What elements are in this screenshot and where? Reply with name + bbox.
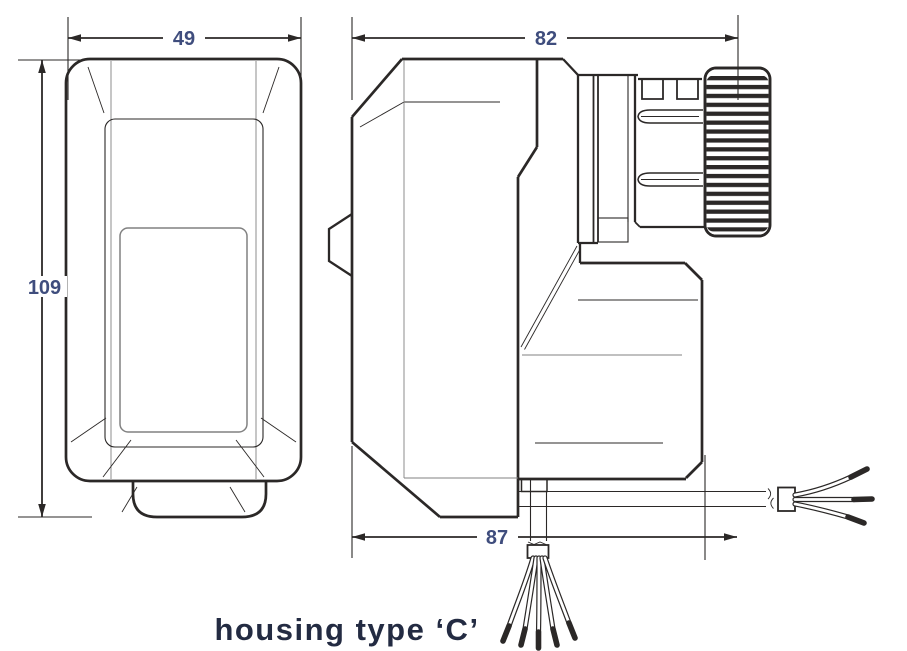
cable-vertical xyxy=(522,479,549,558)
dim-side-depth-lower-label: 87 xyxy=(486,527,508,549)
side-body-outline xyxy=(352,59,578,517)
dim-side-depth-upper-label: 82 xyxy=(535,28,557,50)
caption: housing type ‘C’ xyxy=(214,612,479,647)
front-view xyxy=(66,59,301,517)
side-view xyxy=(329,59,872,648)
side-mounting-tab xyxy=(329,214,352,276)
dim-side-depth-upper: 82 xyxy=(352,15,738,100)
side-stem xyxy=(638,79,703,186)
dim-front-width-label: 49 xyxy=(173,28,195,50)
wire-fan-right xyxy=(795,469,872,523)
stem-tab-right xyxy=(677,79,698,99)
front-body-outline xyxy=(66,59,301,481)
side-body-inner-lines xyxy=(360,60,518,478)
wire-fan-bottom xyxy=(503,558,575,648)
cable-horizontal xyxy=(519,488,795,512)
stem-tab-left xyxy=(642,79,663,99)
side-collar xyxy=(578,75,706,263)
front-foot xyxy=(133,481,266,517)
housing-dimension-drawing: 49 109 82 87 xyxy=(0,0,907,651)
dim-front-height-label: 109 xyxy=(28,277,61,299)
dim-side-depth-lower: 87 xyxy=(352,446,737,560)
technical-drawing-page: 49 109 82 87 xyxy=(0,0,907,651)
side-lower-body xyxy=(518,246,702,479)
